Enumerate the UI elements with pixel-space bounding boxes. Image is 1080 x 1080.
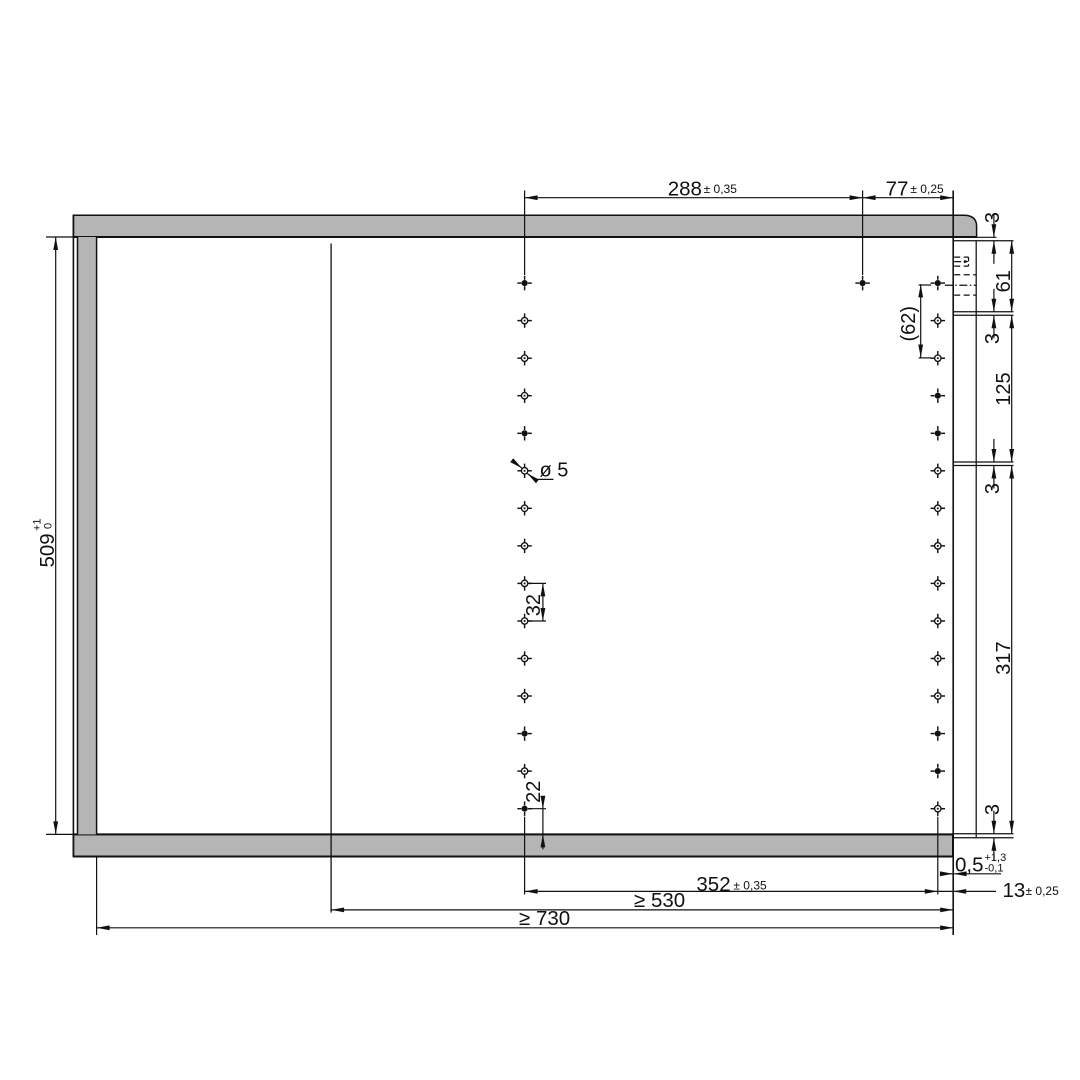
svg-text:352: 352 [696,873,730,896]
svg-text:± 0,25: ± 0,25 [910,182,944,196]
svg-text:≥ 730: ≥ 730 [519,907,570,930]
svg-text:ø 5: ø 5 [540,460,569,482]
svg-text:-0,1: -0,1 [985,862,1004,874]
svg-text:0: 0 [43,523,55,529]
svg-text:± 0,35: ± 0,35 [733,878,767,892]
svg-text:125: 125 [993,372,1015,405]
svg-text:32: 32 [523,594,545,616]
svg-text:(62): (62) [898,306,920,342]
svg-text:22: 22 [523,781,545,803]
svg-text:3: 3 [982,483,1004,494]
svg-text:± 0,25: ± 0,25 [1026,884,1060,898]
svg-text:0,5: 0,5 [955,854,984,877]
svg-text:3: 3 [982,333,1004,344]
svg-text:3: 3 [982,212,1004,223]
svg-text:77: 77 [886,178,909,201]
svg-text:288: 288 [668,178,702,201]
svg-text:3: 3 [982,804,1004,815]
svg-text:≥ 530: ≥ 530 [634,889,685,912]
svg-text:± 0,35: ± 0,35 [704,182,738,196]
svg-text:13: 13 [1003,879,1026,902]
svg-text:317: 317 [993,641,1015,674]
svg-text:509: 509 [36,533,59,567]
svg-text:61: 61 [993,270,1015,292]
